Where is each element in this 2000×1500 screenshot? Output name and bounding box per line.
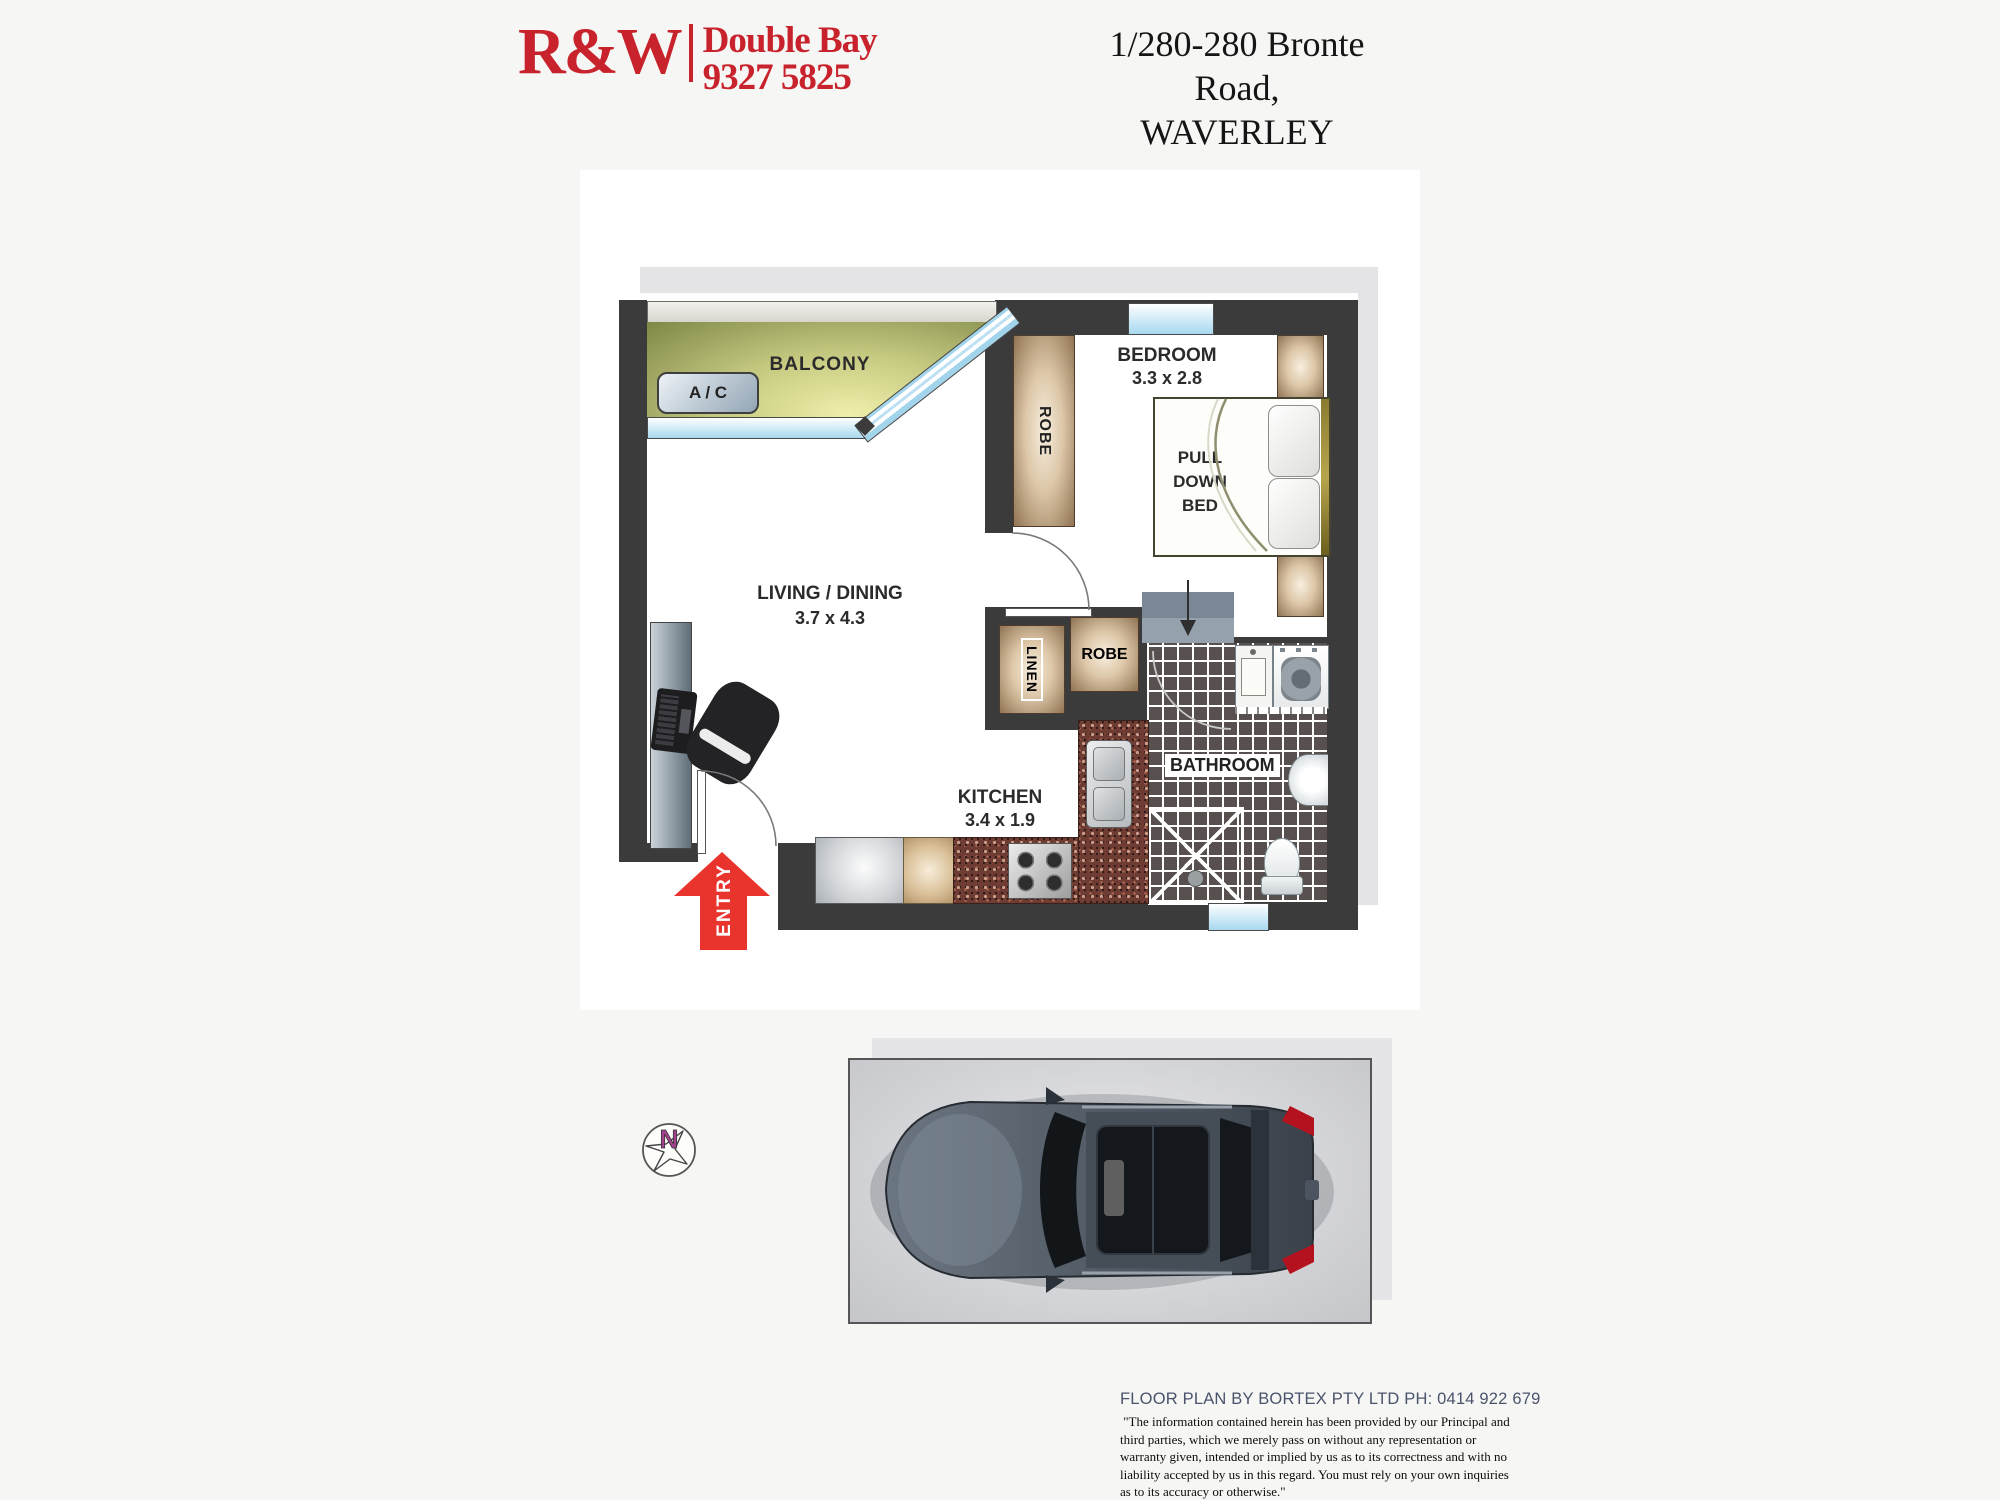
car-hood-sheen: [898, 1114, 1022, 1266]
agency-logo: R&W Double Bay 9327 5825: [518, 22, 877, 96]
car-rear-handle: [1305, 1180, 1319, 1200]
compass: N: [638, 1118, 700, 1180]
car-rear-window: [1220, 1118, 1253, 1262]
logo-office-name: Double Bay: [703, 22, 877, 59]
floor-plan: BALCONY A / C BEDROOM 3.3 x 2.8 ROBE PUL…: [580, 170, 1420, 1010]
flyer-page: R&W Double Bay 9327 5825 1/280-280 Bront…: [0, 0, 2000, 1500]
entry-label: ENTRY: [714, 863, 734, 937]
disclaimer-line: as to its accuracy or otherwise.": [1120, 1483, 1540, 1500]
bedroom-door-arc: [1012, 533, 1089, 610]
plan-overlay: [580, 170, 1420, 1010]
logo-phone: 9327 5825: [703, 59, 877, 96]
car-interior-seats: [1104, 1160, 1124, 1216]
disclaimer-line: warranty given, intended or implied by u…: [1120, 1448, 1540, 1466]
disclaimer: "The information contained herein has be…: [1120, 1413, 1540, 1500]
compass-north-label: N: [660, 1124, 679, 1154]
address-line1: 1/280-280 Bronte Road,: [1072, 22, 1402, 110]
entry-door-arc: [701, 771, 776, 846]
logo-divider: [689, 24, 693, 82]
logo-brand-text: R&W: [518, 22, 681, 82]
passage-arrow-head: [1180, 620, 1196, 636]
bed-blanket-fold-inner: [1208, 399, 1256, 551]
bathroom-door-arc: [1153, 651, 1231, 729]
disclaimer-line: "The information contained herein has be…: [1120, 1413, 1540, 1431]
car-top-view: [850, 1060, 1370, 1322]
property-address: 1/280-280 Bronte Road, WAVERLEY: [1072, 22, 1402, 154]
address-line2: WAVERLEY: [1072, 110, 1402, 154]
disclaimer-line: liability accepted by us in this regard.…: [1120, 1466, 1540, 1484]
car-rear-spoiler: [1251, 1110, 1269, 1270]
disclaimer-line: third parties, which we merely pass on w…: [1120, 1431, 1540, 1449]
bed-blanket-fold: [1215, 399, 1267, 551]
floorplan-credit: FLOOR PLAN BY BORTEX PTY LTD PH: 0414 92…: [1120, 1390, 1540, 1409]
car-space: [848, 1058, 1372, 1324]
